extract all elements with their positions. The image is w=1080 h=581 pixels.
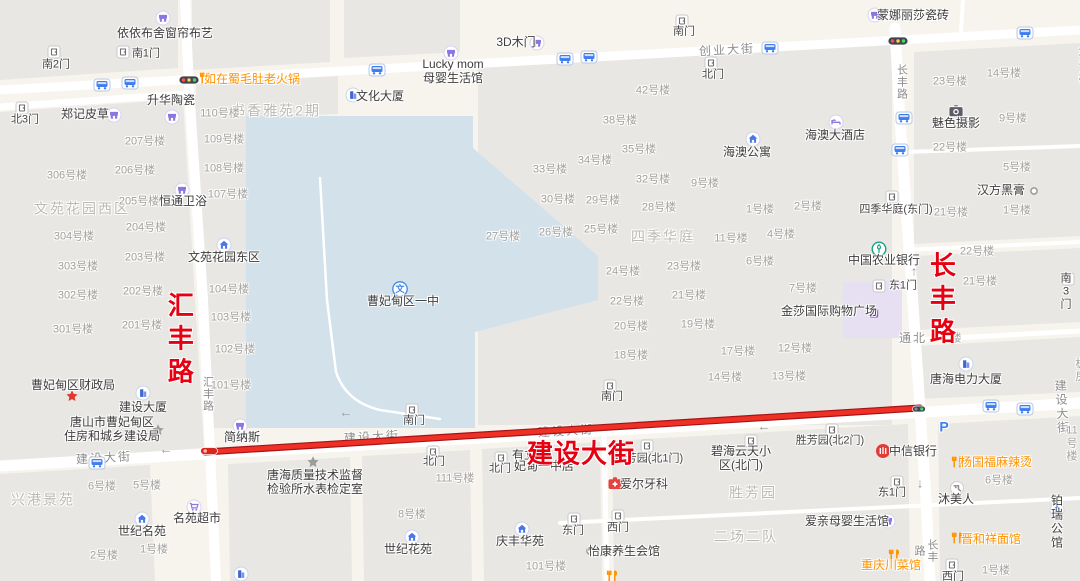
building-number: 5号楼 — [133, 480, 161, 493]
traffic-light-icon — [888, 37, 909, 46]
road-label: 长丰路 — [895, 64, 908, 100]
poi-label[interactable]: 如在蜀毛肚老火锅 — [204, 72, 300, 86]
restaurant-icon[interactable] — [606, 570, 618, 581]
building-number: 32号楼 — [636, 174, 670, 187]
building-number: 207号楼 — [125, 136, 165, 149]
building-number: 25号楼 — [584, 224, 618, 237]
svg-text:文: 文 — [394, 283, 405, 294]
building-number: 9号楼 — [999, 113, 1027, 126]
poi-label[interactable]: 铂瑞公馆 — [1046, 494, 1069, 551]
building-number: 38号楼 — [603, 115, 637, 128]
building-number: 11号楼 — [1066, 425, 1077, 464]
building-number: 203号楼 — [125, 252, 165, 265]
gate-label[interactable]: 西门 — [607, 522, 629, 535]
building-number: 19号楼 — [681, 319, 715, 332]
gate-label[interactable]: 四季华庭(东门) — [859, 204, 932, 217]
poi-label[interactable]: 碧海云天小 区(北门) — [711, 444, 771, 472]
building-number: 21号楼 — [963, 276, 997, 289]
gate-label[interactable]: 南门 — [601, 391, 623, 404]
poi-label[interactable]: 唐海质量技术监督 检验所水表检定室 — [267, 468, 363, 496]
poi-label[interactable]: 唐山市曹妃甸区 住房和城乡建设局 — [64, 415, 160, 443]
bus-stop-icon[interactable] — [557, 53, 574, 66]
poi-label[interactable]: 中国农业银行 — [848, 253, 920, 267]
building-number: 26号楼 — [539, 227, 573, 240]
road-label: 建设大街 — [538, 422, 595, 439]
building-number: 1号楼 — [140, 544, 168, 557]
building-number: 1号楼 — [746, 204, 774, 217]
bus-stop-icon[interactable] — [762, 42, 779, 55]
gate-label[interactable]: 西门 — [942, 571, 964, 581]
road-arrow-icon: ↑ — [911, 263, 918, 278]
poi-label[interactable]: 恒通卫浴 — [159, 194, 207, 208]
road-label-huifeng-red: 汇丰路 — [163, 292, 194, 391]
gate-label[interactable]: 南3门 — [1059, 273, 1073, 312]
gate-label[interactable]: 北3门 — [11, 114, 39, 127]
building-icon[interactable] — [959, 357, 974, 372]
door-icon[interactable] — [641, 440, 654, 453]
poi-label[interactable]: 晋和祥面馆 — [961, 532, 1021, 546]
bus-stop-icon[interactable] — [892, 144, 909, 157]
poi-label[interactable]: 蒙娜丽莎瓷砖 — [877, 8, 949, 22]
route-end-traffic-light-icon — [912, 406, 926, 413]
bus-stop-icon[interactable] — [122, 77, 139, 90]
building-number: 303号楼 — [58, 261, 98, 274]
poi-label[interactable]: 简纳斯 — [224, 430, 260, 444]
poi-label[interactable]: 名苑超市 — [173, 511, 221, 525]
building-number: 4号楼 — [767, 229, 795, 242]
poi-label[interactable]: 世纪花苑 — [384, 542, 432, 556]
building-number: 204号楼 — [126, 222, 166, 235]
building-number: 22号楼 — [933, 142, 967, 155]
building-number: 1号楼 — [982, 565, 1010, 578]
building-number: 304号楼 — [54, 231, 94, 244]
road-label: 建设大街 — [344, 428, 401, 445]
building-number: 101号楼 — [526, 561, 566, 574]
building-number: 9号楼 — [691, 178, 719, 191]
building-number: 24号楼 — [606, 266, 640, 279]
bus-stop-icon[interactable] — [1017, 27, 1034, 40]
road-arrow-icon: ← — [758, 418, 771, 433]
poi-label[interactable]: 曹妃甸区一中 — [367, 294, 439, 308]
building-number: 14号楼 — [708, 372, 742, 385]
building-number: 11号楼 — [714, 233, 747, 246]
poi-label[interactable]: 中信银行 — [889, 444, 937, 458]
building-number: 34号楼 — [578, 155, 612, 168]
building-number: 22号楼 — [960, 246, 994, 259]
poi-label[interactable]: 升华陶瓷 — [147, 93, 195, 107]
area-label: 四季华庭 — [631, 229, 695, 246]
building-number: 101号楼 — [211, 380, 251, 393]
road-arrow-icon: ← — [160, 441, 173, 456]
building-number: 2号楼 — [90, 550, 118, 563]
poi-label[interactable]: 怡康养生会馆 — [588, 544, 660, 558]
shop-icon[interactable] — [156, 11, 171, 26]
poi-label[interactable]: 魅色摄影 — [932, 116, 980, 130]
star-icon — [306, 456, 320, 469]
gate-label[interactable]: 南2门 — [42, 59, 70, 72]
poi-label[interactable]: Lucky mom 母婴生活馆 — [422, 57, 483, 85]
building-number: 22号楼 — [610, 296, 644, 309]
parking-icon[interactable]: P — [939, 419, 948, 436]
building-icon[interactable] — [136, 386, 151, 401]
area-label: 兴港景苑 — [11, 492, 75, 509]
area-label: 书香雅苑2期 — [231, 103, 321, 120]
building-number: 104号楼 — [209, 284, 249, 297]
area-label: 文苑花园西区 — [34, 201, 130, 218]
poi-label[interactable]: 重庆川菜馆 — [861, 558, 921, 572]
poi-label[interactable]: 海澳大酒店 — [805, 128, 865, 142]
building-number: 6号楼 — [746, 256, 774, 269]
building-number: 107号楼 — [208, 189, 248, 202]
route-start-marker-icon — [200, 447, 218, 455]
gate-label[interactable]: 南门 — [403, 415, 425, 428]
building-number: 21号楼 — [672, 290, 706, 303]
poi-label[interactable]: 沐美人 — [938, 492, 974, 506]
building-number: 42号楼 — [636, 85, 670, 98]
building-number: 110号楼 — [200, 108, 240, 121]
building-number: 23号楼 — [933, 76, 967, 89]
bus-stop-icon[interactable] — [369, 64, 386, 77]
building-number: 28号楼 — [642, 202, 676, 215]
poi-label[interactable]: 海澳公寓 — [723, 145, 771, 159]
building-number: 1号楼 — [1003, 205, 1031, 218]
poi-label[interactable]: 3D木门 — [496, 35, 535, 49]
road-label-jianshe-red: 建设大街 — [527, 440, 635, 471]
building-number: 33号楼 — [533, 164, 567, 177]
building-number: 12号楼 — [778, 343, 812, 356]
building-number: 18号楼 — [614, 350, 648, 363]
bus-stop-icon[interactable] — [94, 79, 111, 92]
road-label-changfeng-red: 长丰路 — [925, 252, 956, 351]
poi-label[interactable]: 金莎国际购物广场 — [781, 304, 877, 318]
gate-label[interactable]: 东1门 — [878, 487, 906, 500]
gate-label[interactable]: 东1门 — [889, 280, 917, 293]
small-circle-icon[interactable] — [1030, 187, 1039, 196]
road-arrow-icon: ← — [340, 404, 353, 419]
building-number: 206号楼 — [115, 165, 155, 178]
building-number: 201号楼 — [122, 320, 162, 333]
gate-label[interactable]: 南1门 — [132, 48, 160, 61]
building-number: 6号楼 — [985, 475, 1013, 488]
poi-label[interactable]: 郑记皮草 — [61, 107, 109, 121]
road-arrow-icon: ↓ — [917, 475, 924, 490]
shop-icon[interactable] — [165, 110, 180, 125]
gate-label[interactable]: 南门 — [673, 26, 695, 39]
poi-label[interactable]: 依依布舍窗帘布艺 — [117, 26, 213, 40]
traffic-light-icon — [179, 76, 200, 85]
building-number: 109号楼 — [204, 134, 244, 147]
building-number: 21号楼 — [934, 207, 968, 220]
gate-label[interactable]: 北门 — [423, 456, 445, 469]
building-number: 13号楼 — [772, 371, 806, 384]
building-number: 8号楼 — [398, 509, 426, 522]
building-number: 17号楼 — [721, 346, 755, 359]
building-number: 30号楼 — [541, 194, 575, 207]
building-number: 29号楼 — [586, 195, 620, 208]
gate-label[interactable]: 胜芳园(北2门) — [796, 435, 864, 448]
poi-label[interactable]: 建设大厦 — [119, 400, 167, 414]
gate-label[interactable]: 北门 — [702, 69, 724, 82]
building-number: 103号楼 — [211, 312, 251, 325]
building-icon[interactable] — [234, 567, 249, 581]
area-label: 二场二队 — [714, 529, 778, 546]
bus-stop-icon[interactable] — [1017, 403, 1034, 416]
door-icon[interactable] — [48, 46, 61, 59]
building-number: 6号楼 — [88, 481, 116, 494]
bus-stop-icon[interactable] — [983, 400, 1000, 413]
building-number: 306号楼 — [47, 170, 87, 183]
building-number: 20号楼 — [614, 321, 648, 334]
building-number: 202号楼 — [123, 286, 163, 299]
gate-label[interactable]: 东门 — [562, 525, 584, 538]
building-number: 111号楼 — [436, 473, 475, 486]
building-number: 205号楼 — [119, 196, 159, 209]
door-icon[interactable] — [886, 191, 899, 204]
building-number: 27号楼 — [486, 231, 520, 244]
building-number: 102号楼 — [215, 344, 255, 357]
poi-label[interactable]: 爱尔牙科 — [620, 477, 668, 491]
area-label: 胜芳园 — [729, 485, 777, 502]
road-label: 通北 — [899, 331, 927, 345]
building-number: 2号楼 — [794, 201, 822, 214]
building-number: 301号楼 — [53, 324, 93, 337]
bus-stop-icon[interactable] — [89, 457, 106, 470]
poi-label[interactable]: 文化大厦 — [356, 89, 404, 103]
building-number: 108号楼 — [204, 163, 244, 176]
poi-label[interactable]: 唐海电力大厦 — [930, 372, 1002, 386]
bus-stop-icon[interactable] — [896, 112, 913, 125]
gate-label[interactable]: 北门 — [489, 463, 511, 476]
bus-stop-icon[interactable] — [581, 51, 598, 64]
building-number: 7号楼 — [789, 283, 817, 296]
building-number: 14号楼 — [987, 68, 1021, 81]
poi-label[interactable]: 文苑花园东区 — [188, 250, 260, 264]
poi-label[interactable]: 世纪名苑 — [118, 524, 166, 538]
door-icon[interactable] — [873, 280, 886, 293]
building-number: 板房 — [1076, 358, 1080, 384]
poi-label[interactable]: 庆丰华苑 — [496, 534, 544, 548]
poi-label[interactable]: 曹妃甸区财政局 — [31, 378, 115, 392]
poi-label[interactable]: 汉方黑膏 — [977, 183, 1025, 197]
door-icon[interactable] — [117, 46, 130, 59]
building-number: 35号楼 — [622, 144, 656, 157]
poi-label[interactable]: 爱亲母婴生活馆 — [805, 514, 889, 528]
building-number: 302号楼 — [58, 290, 98, 303]
map-canvas[interactable]: 汇丰路长丰路建设大街创业大街建设大街建设大街建设大街建设大街汇丰路长丰路长丰路通… — [0, 0, 1080, 581]
poi-label[interactable]: 杨国福麻辣烫 — [960, 455, 1032, 469]
building-number: 5号楼 — [1003, 162, 1031, 175]
building-number: 23号楼 — [667, 261, 701, 274]
